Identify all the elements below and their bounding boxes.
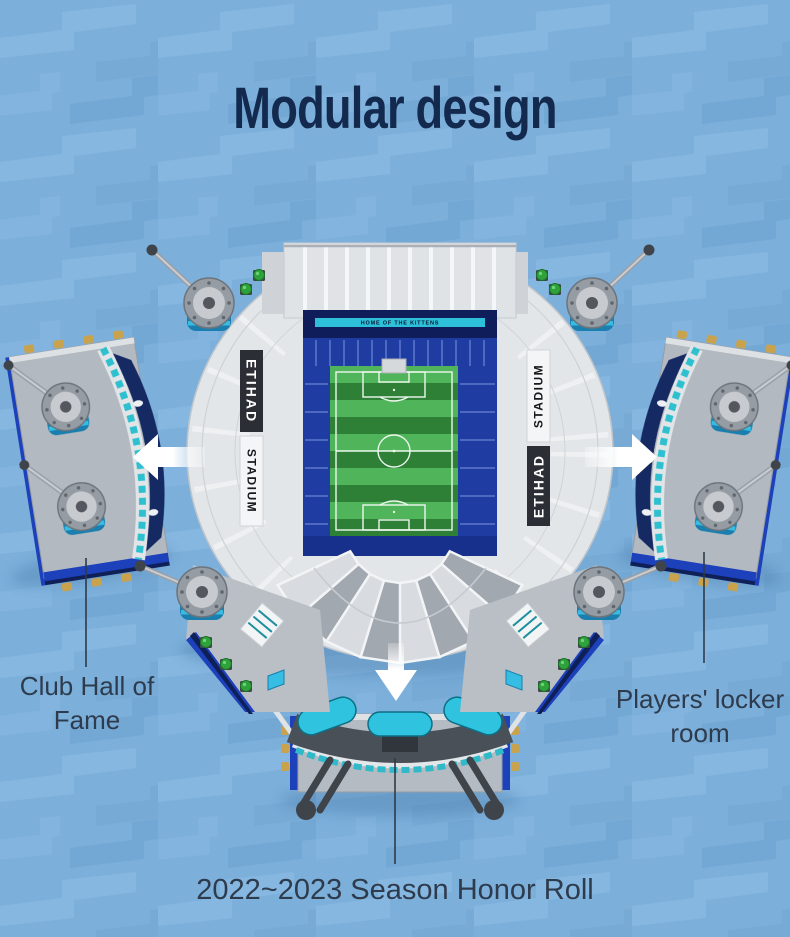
product-diagram: HOME OF THE KITTENS xyxy=(0,0,790,937)
etihad-banner-left: ETIHAD STADIUM xyxy=(240,350,263,526)
stadium-top-banner-text: HOME OF THE KITTENS xyxy=(361,320,439,326)
callout-right-label: Players' locker room xyxy=(608,683,790,751)
etihad-banner-right: STADIUM ETIHAD xyxy=(527,350,550,526)
banner-text-stadium: STADIUM xyxy=(244,449,258,513)
north-roof xyxy=(262,243,528,318)
callout-bottom-label: 2022~2023 Season Honor Roll xyxy=(0,872,790,910)
banner-text-stadium: STADIUM xyxy=(532,364,546,428)
banner-text-etihad: ETIHAD xyxy=(244,359,260,423)
pitch xyxy=(330,359,458,536)
page-title: Modular design xyxy=(87,80,703,138)
banner-text-etihad: ETIHAD xyxy=(530,454,546,518)
callout-left-label: Club Hall of Fame xyxy=(4,670,170,738)
scoreboard xyxy=(382,359,406,373)
